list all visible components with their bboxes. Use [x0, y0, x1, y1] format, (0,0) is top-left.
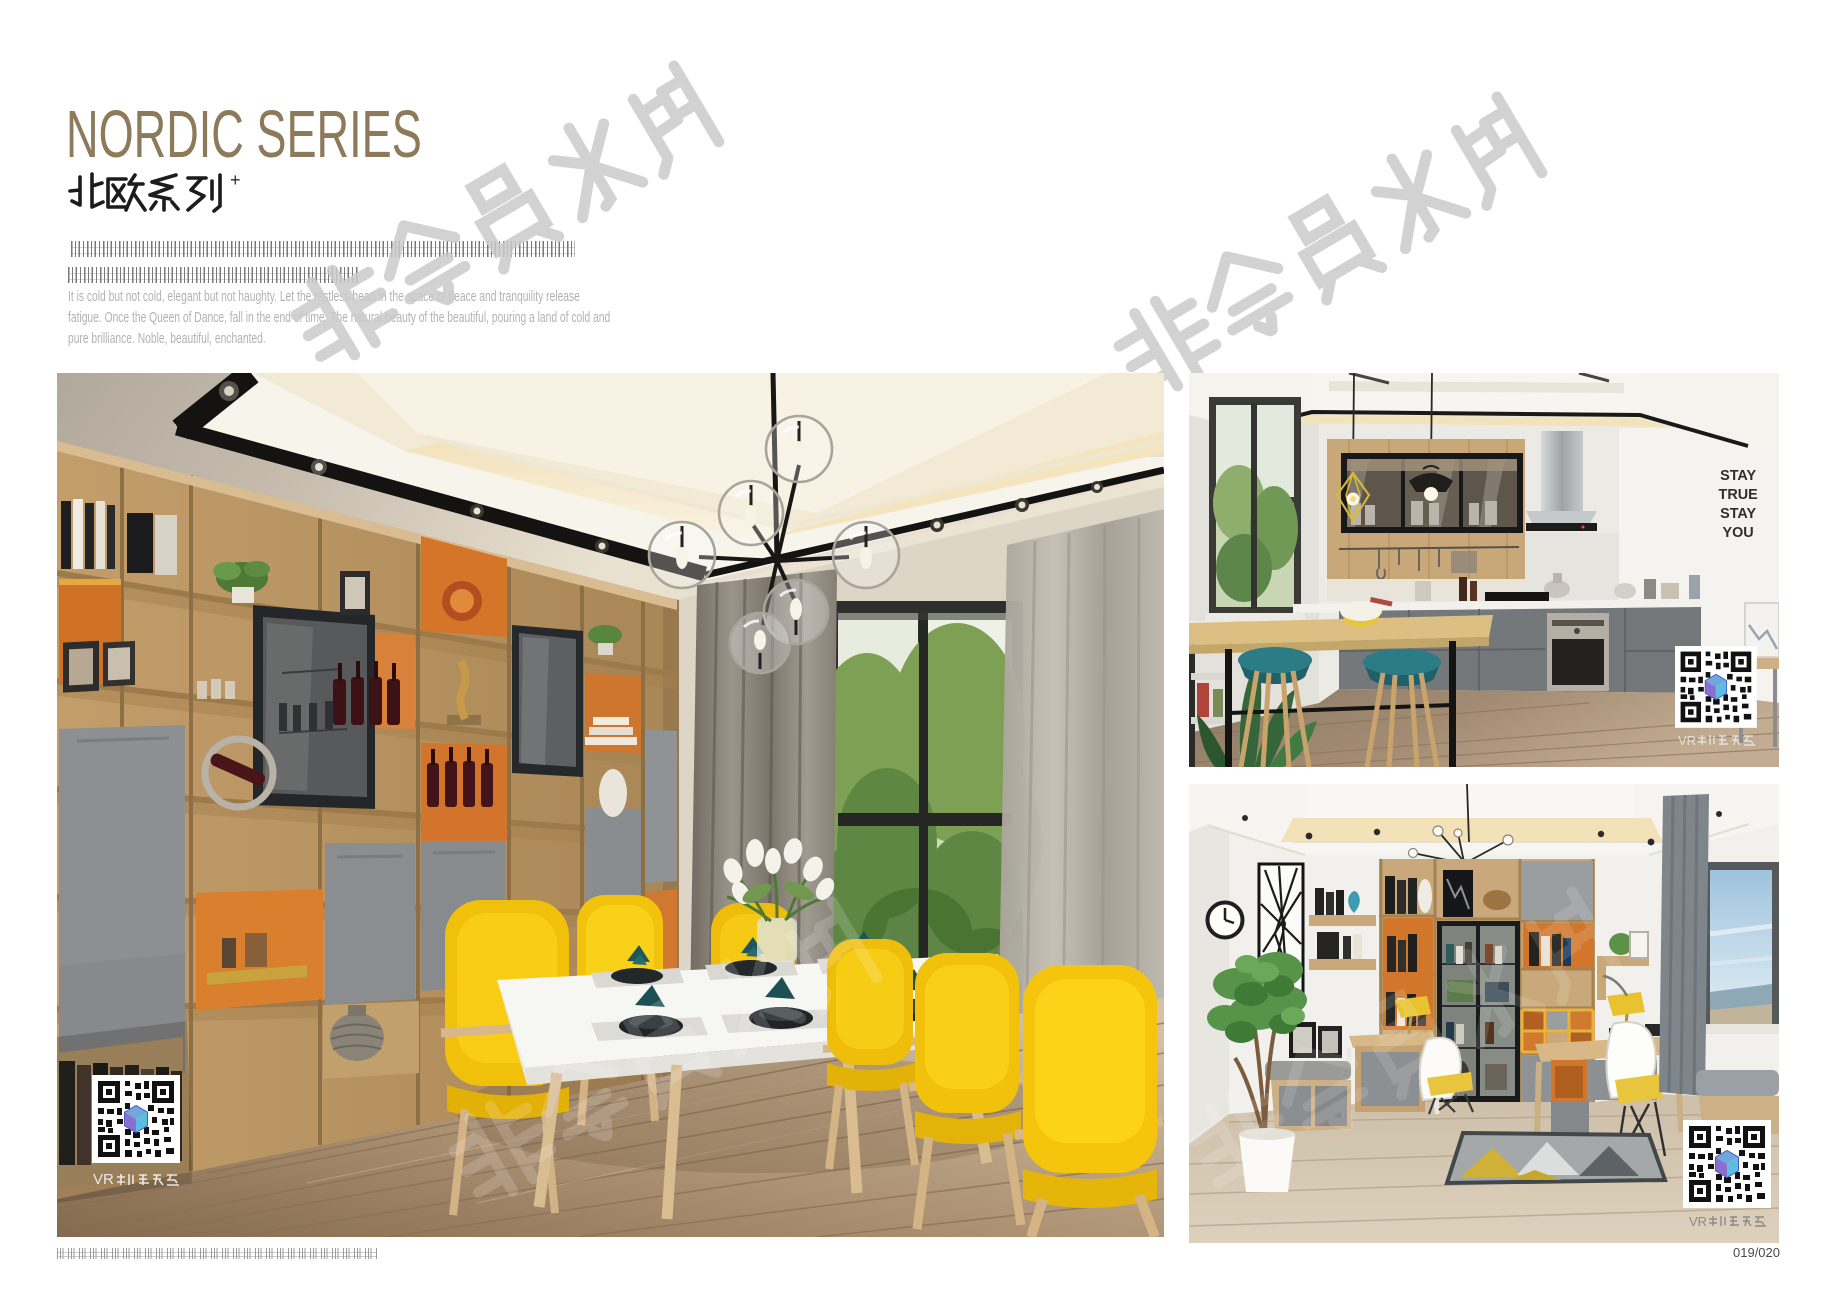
svg-text:VR: VR [1689, 1214, 1707, 1229]
svg-text:YOU: YOU [1723, 525, 1754, 541]
svg-text:VR: VR [93, 1171, 114, 1188]
svg-text:VR: VR [1678, 733, 1696, 748]
svg-text:TRUE: TRUE [1719, 487, 1758, 503]
svg-text:STAY: STAY [1720, 468, 1756, 484]
svg-text:STAY: STAY [1720, 506, 1756, 522]
